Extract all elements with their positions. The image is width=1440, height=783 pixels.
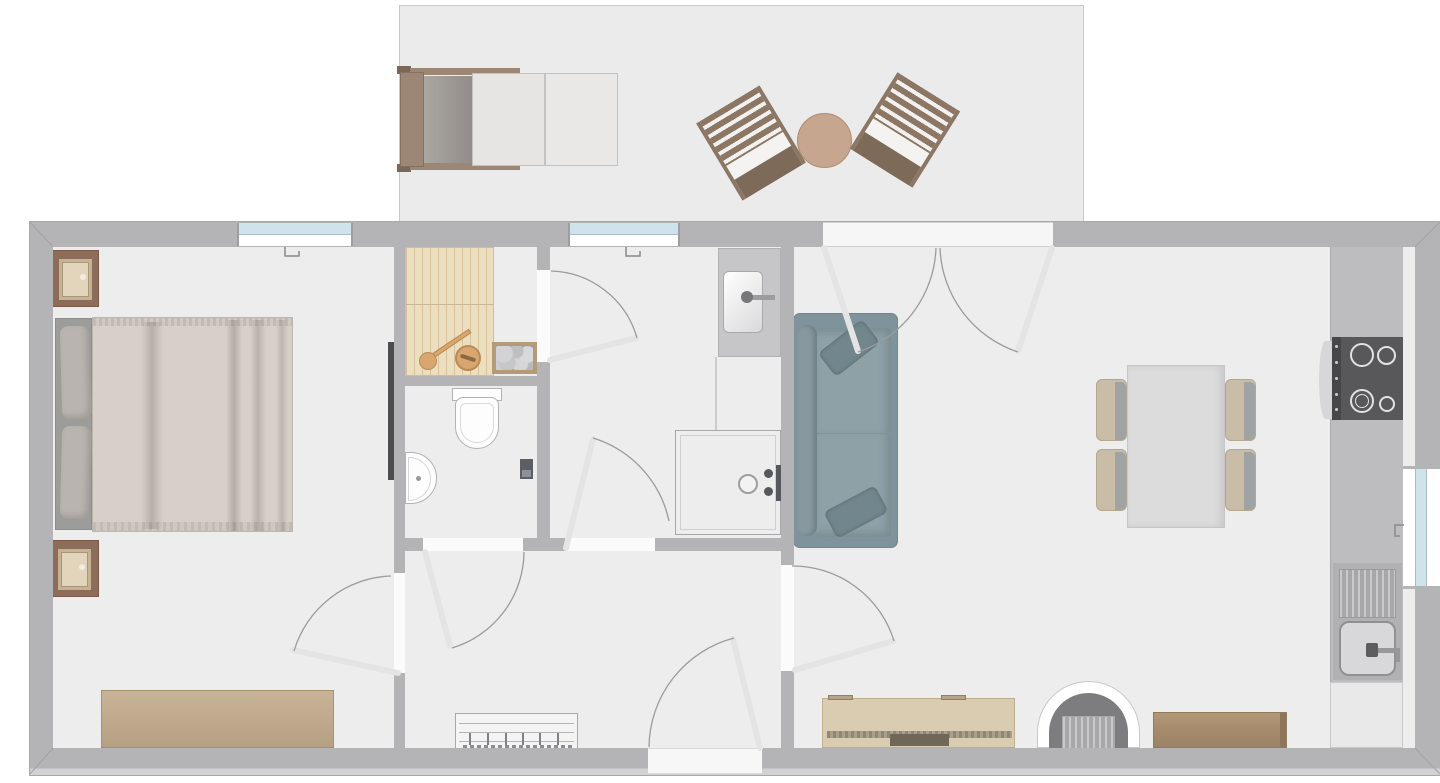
sofa-backrest	[797, 325, 817, 536]
control-knob	[1335, 345, 1338, 348]
cooktop[interactable]	[1332, 337, 1403, 420]
duvet	[92, 317, 293, 532]
duvet-fold	[250, 320, 266, 531]
bed-pillow-bottom	[59, 425, 92, 521]
chair-back-shadow	[1115, 452, 1126, 510]
table-lamp	[58, 549, 91, 590]
shower-knob-top	[764, 469, 773, 478]
shoe-rack[interactable]	[455, 713, 578, 750]
sauna-heater[interactable]	[492, 342, 537, 374]
lounger-backrest	[424, 76, 472, 163]
shower-knob-bottom	[764, 487, 773, 496]
wooden-bench[interactable]	[1153, 712, 1287, 748]
bed-pillow-top	[59, 325, 92, 421]
dining-chair-top-right[interactable]	[1225, 379, 1256, 441]
duvet-fold	[276, 320, 288, 531]
window-glass	[239, 223, 351, 235]
toilet-brush[interactable]	[520, 459, 533, 479]
dresser[interactable]	[101, 690, 334, 748]
walk-in-shower[interactable]	[675, 430, 781, 535]
chair-back-shadow	[1244, 452, 1255, 510]
control-knob	[1335, 408, 1338, 411]
glass-divider	[715, 357, 717, 430]
terrace-door-opening[interactable]	[823, 222, 1053, 247]
burner-medium-top	[1377, 346, 1396, 365]
rack-leg	[469, 733, 471, 745]
nightstand-bottom[interactable]	[50, 540, 99, 597]
control-knob	[1335, 377, 1338, 380]
lounger-frame	[400, 72, 424, 167]
burner-inner-ring	[1355, 394, 1369, 408]
dining-chair-top-left[interactable]	[1096, 379, 1127, 441]
wall-living-left	[781, 247, 794, 748]
sink-unit[interactable]	[1333, 563, 1402, 680]
burner-small-bottom	[1379, 396, 1395, 412]
kitchen-window[interactable]	[1403, 466, 1440, 589]
heater-stones	[496, 346, 533, 370]
tv-base	[890, 734, 949, 746]
duvet-fold	[141, 322, 163, 529]
bench-edge	[1280, 713, 1286, 747]
faucet-handle	[1366, 643, 1378, 657]
round-side-table[interactable]	[797, 113, 852, 168]
tv-sideboard[interactable]	[822, 698, 1015, 748]
nightstand-top[interactable]	[51, 250, 99, 307]
dining-chair-bottom-left[interactable]	[1096, 449, 1127, 511]
ladle-head[interactable]	[419, 352, 437, 370]
oven-handle	[1319, 341, 1332, 419]
dining-table[interactable]	[1127, 365, 1225, 528]
living-door-opening[interactable]	[781, 565, 794, 671]
shower-door-opening[interactable]	[565, 538, 655, 551]
rack-leg	[487, 733, 489, 745]
burner-large-top	[1350, 343, 1374, 367]
fireplace-grate	[1062, 716, 1115, 749]
toilet[interactable]	[455, 397, 499, 449]
vanity-faucet	[741, 291, 753, 303]
rack-leg	[522, 733, 524, 745]
brush-detail	[522, 470, 531, 477]
lounger-cushion-2	[545, 73, 618, 166]
double-bed[interactable]	[55, 317, 293, 532]
rack-leg	[505, 733, 507, 745]
rack-shelf	[459, 723, 574, 724]
drainboard	[1339, 569, 1396, 618]
wc-door-opening[interactable]	[423, 538, 523, 551]
bench-seam	[406, 304, 493, 305]
bedroom-window[interactable]	[237, 223, 353, 246]
floor-plan	[0, 0, 1440, 783]
shower-drain	[738, 474, 758, 494]
wall-sauna-bottom	[394, 376, 550, 386]
rack-leg	[539, 733, 541, 745]
sideboard-foot	[941, 695, 966, 700]
sun-lounger[interactable]	[397, 66, 621, 172]
burner-large-bottom	[1350, 389, 1374, 413]
control-knob	[1335, 393, 1338, 396]
lounger-cushion-1	[472, 73, 545, 166]
chair-back-shadow	[1244, 382, 1255, 440]
base-cabinet[interactable]	[1330, 682, 1403, 748]
window-glass	[1415, 469, 1427, 586]
faucet-hook	[1396, 652, 1400, 662]
entrance-door-opening[interactable]	[648, 748, 762, 774]
dining-chair-bottom-right[interactable]	[1225, 449, 1256, 511]
lamp-knob	[79, 564, 85, 570]
water-bucket[interactable]	[455, 345, 481, 371]
bedroom-door-opening[interactable]	[394, 573, 405, 673]
wall-left	[30, 222, 53, 775]
control-knob	[1335, 361, 1338, 364]
sauna-door-opening[interactable]	[537, 270, 550, 362]
shower-room-window[interactable]	[568, 223, 680, 246]
toilet-bowl-rim	[460, 403, 494, 443]
table-lamp	[59, 259, 92, 300]
sideboard-foot	[828, 695, 853, 700]
vanity-counter[interactable]	[718, 248, 781, 357]
duvet-fold	[226, 320, 242, 531]
shower-inner-line	[680, 435, 776, 530]
chair-back-shadow	[1115, 382, 1126, 440]
rack-leg	[557, 733, 559, 745]
lamp-knob	[80, 274, 86, 280]
basin-drain	[416, 476, 421, 481]
two-seat-sofa[interactable]	[793, 313, 898, 548]
window-glass	[570, 223, 678, 235]
bucket-handle	[460, 354, 476, 363]
